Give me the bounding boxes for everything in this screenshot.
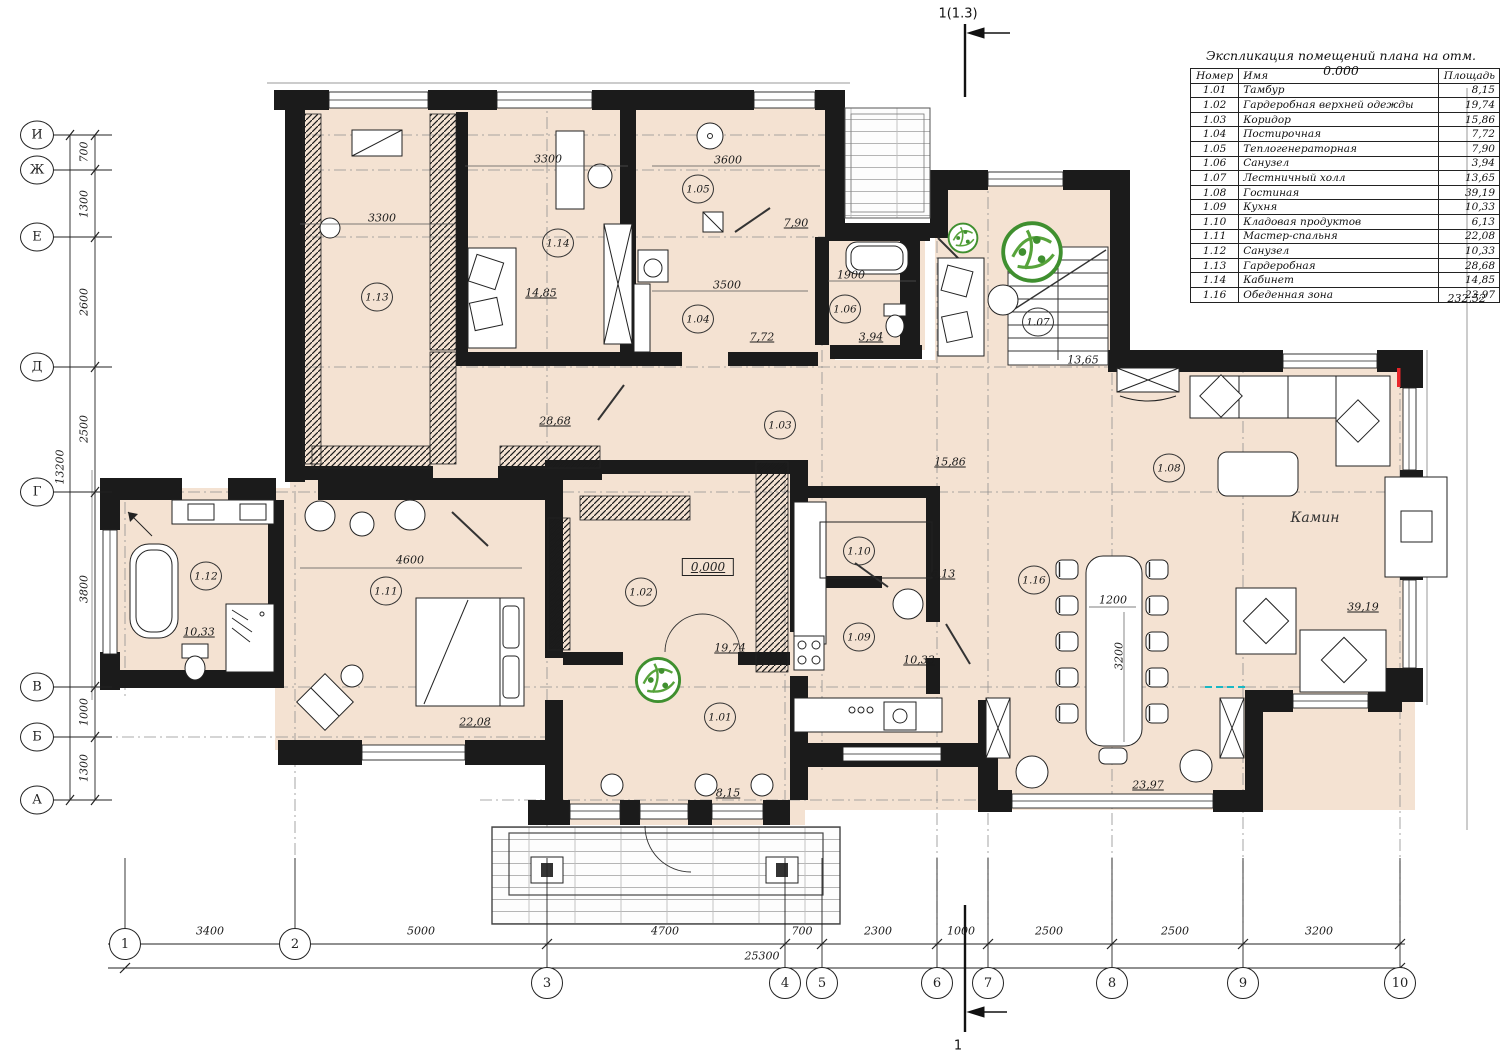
legend-cell: 1.14 xyxy=(1191,273,1239,288)
legend-row: 1.08Гостиная39,19 xyxy=(1191,185,1500,200)
legend-cell: Санузел xyxy=(1239,244,1439,259)
floor-plan-sheet: ИЖЕДГВБА12345678910700130026002500380010… xyxy=(0,0,1500,1061)
legend-row: 1.01Тамбур8,15 xyxy=(1191,83,1500,98)
red-revision-mark xyxy=(1397,368,1401,387)
legend-cell: Санузел xyxy=(1239,156,1439,171)
legend-cell: 13,65 xyxy=(1439,171,1500,186)
legend-row: 1.09Кухня10,33 xyxy=(1191,200,1500,215)
legend-cell: 1.07 xyxy=(1191,171,1239,186)
legend-cell: 19,74 xyxy=(1439,98,1500,113)
legend-row: 1.14Кабинет14,85 xyxy=(1191,273,1500,288)
legend-row: 1.03Коридор15,86 xyxy=(1191,112,1500,127)
legend-cell: 1.13 xyxy=(1191,258,1239,273)
legend-total: 232,52 xyxy=(1190,292,1486,305)
legend-cell: 7,72 xyxy=(1439,127,1500,142)
legend-row: 1.05Теплогенераторная7,90 xyxy=(1191,141,1500,156)
legend-cell: Кухня xyxy=(1239,200,1439,215)
legend-cell: 1.06 xyxy=(1191,156,1239,171)
legend-cell: Мастер-спальня xyxy=(1239,229,1439,244)
legend-cell: Постирочная xyxy=(1239,127,1439,142)
legend-cell: 22,08 xyxy=(1439,229,1500,244)
legend-cell: 1.09 xyxy=(1191,200,1239,215)
legend-row: 1.12Санузел10,33 xyxy=(1191,244,1500,259)
legend-header-0: Номер xyxy=(1191,69,1239,84)
legend-header-1: Имя xyxy=(1239,69,1439,84)
legend-cell: 15,86 xyxy=(1439,112,1500,127)
legend-cell: 1.11 xyxy=(1191,229,1239,244)
legend-row: 1.04Постирочная7,72 xyxy=(1191,127,1500,142)
legend-cell: 1.03 xyxy=(1191,112,1239,127)
legend-cell: 10,33 xyxy=(1439,244,1500,259)
legend-row: 1.06Санузел3,94 xyxy=(1191,156,1500,171)
legend-cell: Лестничный холл xyxy=(1239,171,1439,186)
legend-cell: Коридор xyxy=(1239,112,1439,127)
legend-cell: 1.08 xyxy=(1191,185,1239,200)
legend-cell: Теплогенераторная xyxy=(1239,141,1439,156)
legend-cell: 1.10 xyxy=(1191,214,1239,229)
terrace xyxy=(492,827,840,924)
legend-cell: Кладовая продуктов xyxy=(1239,214,1439,229)
legend-cell: 7,90 xyxy=(1439,141,1500,156)
legend-header-2: Площадь xyxy=(1439,69,1500,84)
legend-cell: 3,94 xyxy=(1439,156,1500,171)
legend-row: 1.07Лестничный холл13,65 xyxy=(1191,171,1500,186)
legend-cell: 28,68 xyxy=(1439,258,1500,273)
legend-cell: 1.01 xyxy=(1191,83,1239,98)
legend-cell: 1.02 xyxy=(1191,98,1239,113)
legend-row: 1.02Гардеробная верхней одежды19,74 xyxy=(1191,98,1500,113)
legend-table: НомерИмяПлощадь 1.01Тамбур8,151.02Гардер… xyxy=(1190,68,1500,303)
legend-cell: Гостиная xyxy=(1239,185,1439,200)
legend-cell: 1.12 xyxy=(1191,244,1239,259)
legend-cell: Гардеробная верхней одежды xyxy=(1239,98,1439,113)
legend-cell: 1.05 xyxy=(1191,141,1239,156)
legend-row: 1.10Кладовая продуктов6,13 xyxy=(1191,214,1500,229)
legend-cell: 6,13 xyxy=(1439,214,1500,229)
legend-cell: 14,85 xyxy=(1439,273,1500,288)
legend-cell: Гардеробная xyxy=(1239,258,1439,273)
legend-cell: 39,19 xyxy=(1439,185,1500,200)
legend-row: 1.13Гардеробная28,68 xyxy=(1191,258,1500,273)
legend-cell: Кабинет xyxy=(1239,273,1439,288)
entry-porch-steps xyxy=(845,108,930,218)
legend-row: 1.11Мастер-спальня22,08 xyxy=(1191,229,1500,244)
legend-cell: Тамбур xyxy=(1239,83,1439,98)
legend-cell: 1.04 xyxy=(1191,127,1239,142)
legend-cell: 10,33 xyxy=(1439,200,1500,215)
legend-cell: 8,15 xyxy=(1439,83,1500,98)
